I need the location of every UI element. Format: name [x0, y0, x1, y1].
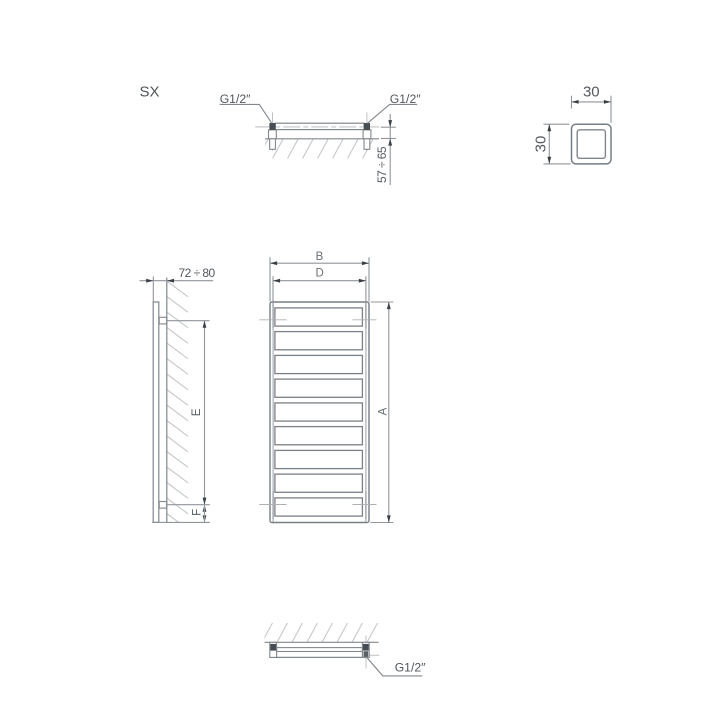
svg-text:G1/2″: G1/2″ [220, 92, 251, 106]
svg-text:F: F [191, 509, 203, 516]
svg-text:G1/2″: G1/2″ [390, 92, 421, 106]
svg-text:D: D [315, 267, 323, 279]
svg-text:E: E [191, 408, 203, 416]
svg-text:30: 30 [532, 136, 549, 153]
svg-text:G1/2″: G1/2″ [395, 660, 426, 674]
svg-text:A: A [378, 407, 390, 415]
svg-text:B: B [316, 251, 324, 263]
svg-text:SX: SX [139, 84, 159, 101]
svg-text:72 ÷ 80: 72 ÷ 80 [179, 266, 216, 280]
svg-text:30: 30 [583, 84, 600, 101]
svg-text:57 ÷ 65: 57 ÷ 65 [375, 146, 389, 183]
